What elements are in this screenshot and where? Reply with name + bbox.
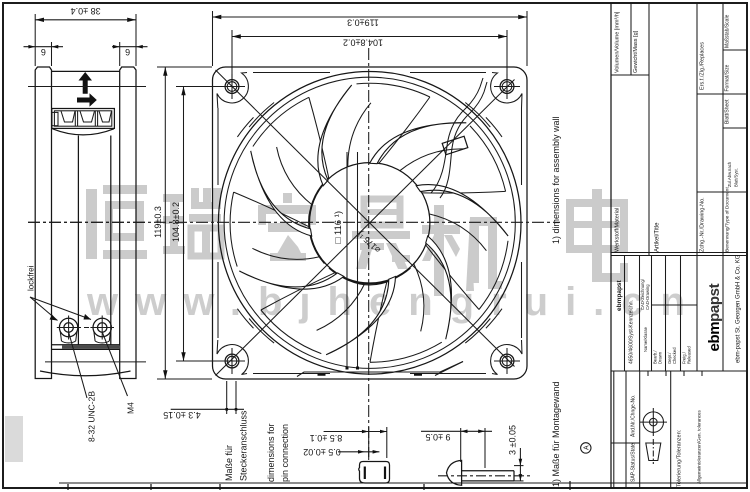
svg-text:Ers.f./Zlg./Replaces: Ers.f./Zlg./Replaces: [700, 42, 706, 90]
svg-text:ebmpapst: ebmpapst: [616, 279, 623, 311]
svg-text:Werkstoff/Material: Werkstoff/Material: [615, 208, 621, 252]
svg-text:6: 6: [41, 47, 46, 57]
svg-text:CAD-Drawing: CAD-Drawing: [645, 284, 650, 310]
svg-text:Format/Size: Format/Size: [725, 64, 731, 91]
svg-text:119±0.3: 119±0.3: [347, 18, 379, 28]
svg-text:A: A: [583, 445, 590, 450]
svg-text:Released: Released: [687, 346, 692, 364]
svg-text:Volumen/Volume [mm³/h]: Volumen/Volume [mm³/h]: [615, 11, 621, 73]
svg-text:8.5 ±0.1: 8.5 ±0.1: [310, 433, 342, 443]
svg-text:9 ±0.5: 9 ±0.5: [426, 432, 451, 442]
svg-text:119±0.3: 119±0.3: [153, 206, 163, 238]
svg-text:ebmpapst: ebmpapst: [706, 283, 723, 351]
svg-text:6: 6: [125, 47, 130, 57]
svg-text:Drawn: Drawn: [658, 351, 663, 364]
svg-text:Änd.Nr./Chnge-No.: Änd.Nr./Chnge-No.: [630, 395, 637, 437]
svg-text:4.3 ±0.15: 4.3 ±0.15: [163, 410, 200, 420]
svg-text:1) dimensions for assembly wal: 1) dimensions for assembly wall: [551, 116, 561, 244]
svg-text:M4: M4: [126, 402, 136, 414]
svg-text:8-32 UNC-2B: 8-32 UNC-2B: [87, 391, 97, 442]
svg-text:Blatt/Syst.: Blatt/Syst.: [734, 168, 739, 187]
svg-text:Benennung/Type of Document: Benennung/Type of Document: [725, 187, 731, 252]
svg-text:Zchg.-Nr./Drawing-No.: Zchg.-Nr./Drawing-No.: [700, 197, 706, 252]
svg-text:0.5 ±0.02: 0.5 ±0.02: [303, 447, 340, 457]
svg-text:1) Maße für Montagewand: 1) Maße für Montagewand: [551, 381, 561, 487]
svg-text:ebm-papst St. Georgen GmbH & C: ebm-papst St. Georgen GmbH & Co. KG: [736, 254, 742, 363]
svg-text:3 ±0.05: 3 ±0.05: [508, 425, 518, 455]
svg-text:Artikel/Title: Artikel/Title: [655, 222, 661, 252]
svg-text:□ 116 ¹): □ 116 ¹): [333, 211, 344, 244]
svg-text:38 ±0.4: 38 ±0.4: [71, 6, 101, 16]
svg-text:104.8±0.2: 104.8±0.2: [343, 38, 383, 48]
svg-text:Zul.Abw.nach: Zul.Abw.nach: [727, 161, 732, 187]
svg-text:Checked: Checked: [672, 347, 677, 364]
svg-text:Blatt/Sheet: Blatt/Sheet: [725, 99, 731, 124]
svg-text:Steckeranschluss: Steckeranschluss: [239, 410, 249, 481]
svg-text:Allgemeintoleranzen/Gen. toler: Allgemeintoleranzen/Gen. tolerances: [697, 409, 702, 484]
svg-text:4650/4600/Syst-Kennzeichn.: 4650/4600/Syst-Kennzeichn.: [629, 300, 635, 364]
svg-text:lockfrei: lockfrei: [27, 265, 36, 291]
svg-text:104.8±0.2: 104.8±0.2: [171, 202, 181, 242]
svg-text:pin connection: pin connection: [280, 424, 290, 482]
svg-text:dimensions for: dimensions for: [266, 423, 276, 482]
svg-text:Tolerierung/Toleranzen:: Tolerierung/Toleranzen:: [677, 429, 683, 487]
svg-text:SAP-Status/State: SAP-Status/State: [631, 443, 637, 482]
svg-text:Gewicht/Mass [g]: Gewicht/Mass [g]: [633, 30, 639, 73]
svg-text:Name/Klasse: Name/Klasse: [643, 326, 648, 352]
svg-text:Maße für: Maße für: [224, 445, 234, 481]
svg-text:Maßstab/Scale: Maßstab/Scale: [725, 14, 731, 48]
